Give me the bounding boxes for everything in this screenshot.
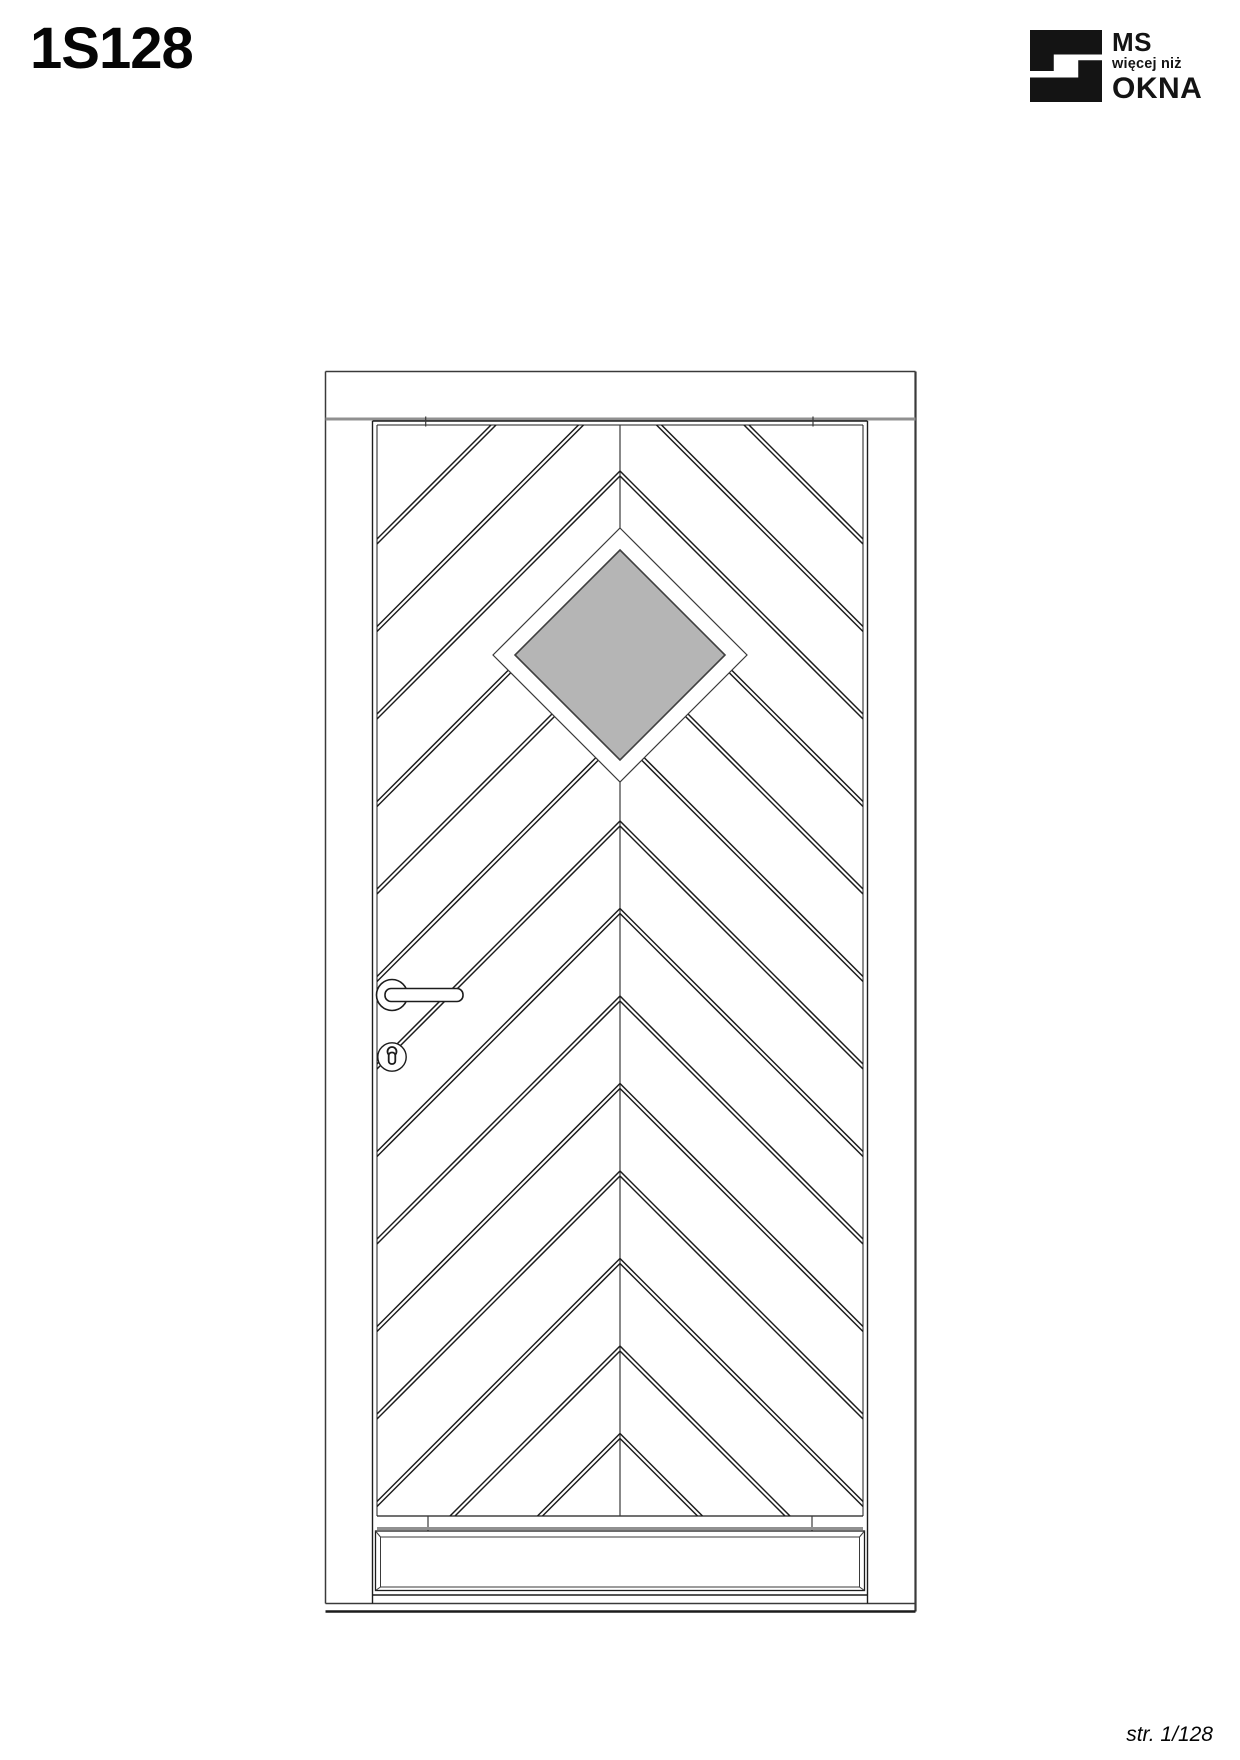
kick-panel-inner (381, 1537, 860, 1587)
door-technical-drawing (0, 0, 1240, 1755)
door-drawing-svg (0, 0, 1240, 1755)
page-number: str. 1/128 (1126, 1723, 1213, 1747)
glazing-diamond (493, 528, 747, 782)
kick-panel (376, 1529, 865, 1591)
keyhole-stem (389, 1053, 396, 1065)
handle-lever (385, 989, 463, 1002)
panel-bevel (376, 1531, 381, 1537)
glass-pane (515, 550, 725, 760)
kick-panel-outer (376, 1531, 865, 1591)
panel-bevel (860, 1531, 865, 1537)
